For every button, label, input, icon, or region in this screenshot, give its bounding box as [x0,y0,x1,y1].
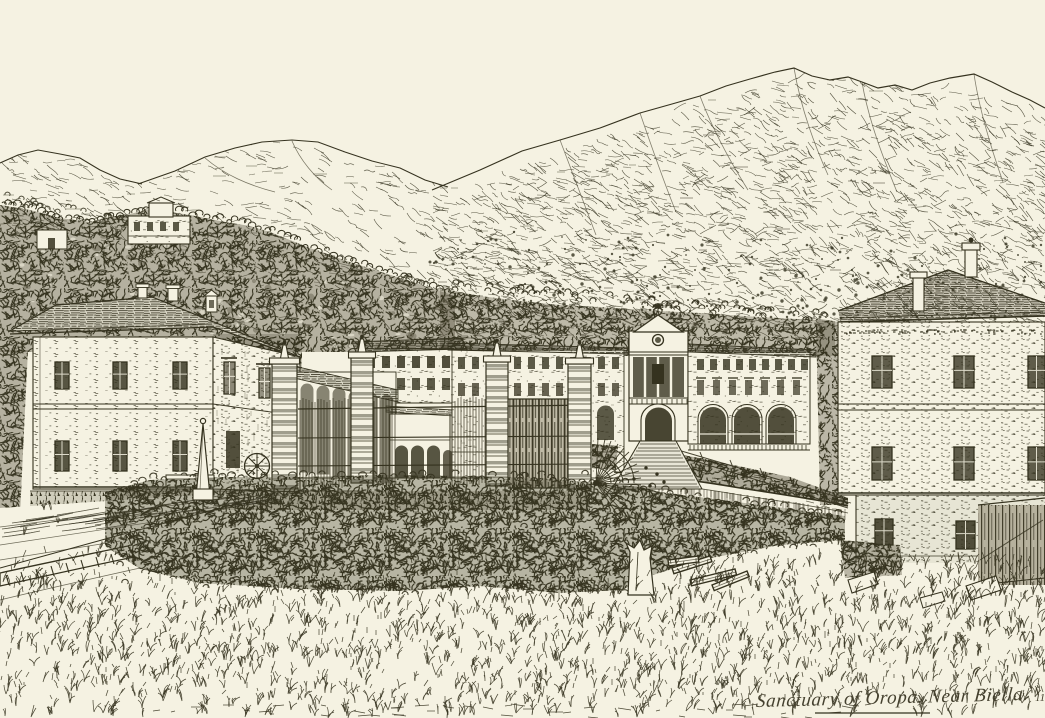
svg-text:11: 11 [1035,692,1045,704]
